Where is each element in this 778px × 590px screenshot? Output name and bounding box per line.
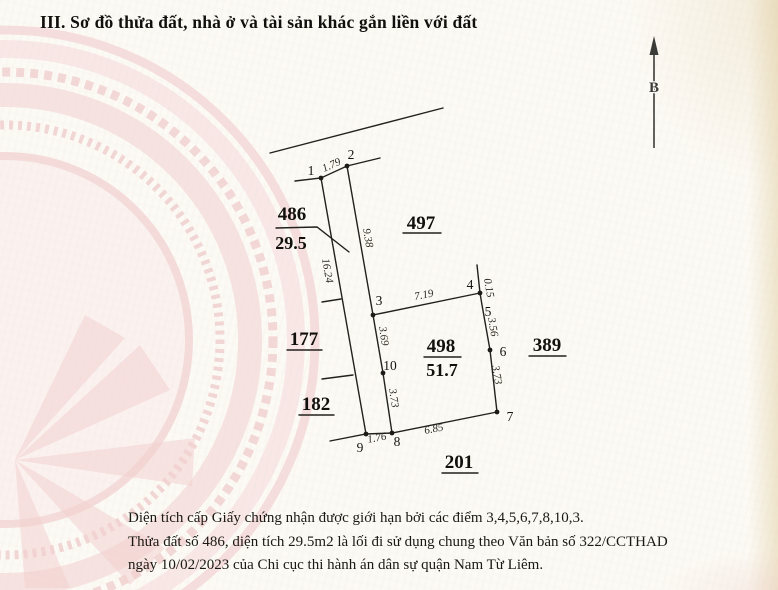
note-line-3: ngày 10/02/2023 của Chi cục thi hành án … <box>128 554 760 578</box>
north-label: B <box>649 80 659 96</box>
notes-block: Diện tích cấp Giấy chứng nhận được giới … <box>128 507 760 578</box>
parcel-labels: 486 29.5 497 498 51.7 177 182 389 201 <box>275 204 561 473</box>
vertex-dot-4 <box>478 291 483 296</box>
document-page: III. Sơ đồ thửa đất, nhà ở và tài sản kh… <box>0 0 778 590</box>
lane-boundary-line <box>347 166 392 433</box>
vertex-dot-2 <box>345 164 350 169</box>
parcel389-number: 389 <box>533 335 562 356</box>
point-label-10: 10 <box>383 358 397 373</box>
vertex-dot-1 <box>319 176 324 181</box>
note-line-1: Diện tích cấp Giấy chứng nhận được giới … <box>128 507 760 531</box>
road-edge-line <box>270 108 443 153</box>
parcel177-number: 177 <box>290 329 319 350</box>
point-label-7: 7 <box>507 409 514 424</box>
parcel498-number: 498 <box>427 336 456 357</box>
dim-3-4: 7.19 <box>413 287 435 303</box>
north-arrow-icon: B <box>649 36 659 148</box>
left-boundary-tick-2 <box>322 375 353 379</box>
dim-1-2: 1.79 <box>320 156 343 175</box>
parcel201-number: 201 <box>445 452 474 473</box>
parcel-diagram: 1 2 3 4 5 6 7 8 9 10 1.79 9.38 16.24 3.6… <box>0 0 778 590</box>
north-arrow-head <box>650 36 659 55</box>
vertex-dots <box>319 164 500 437</box>
parcel497-number: 497 <box>407 213 436 234</box>
point-label-2: 2 <box>348 147 355 162</box>
dimension-labels: 1.79 9.38 16.24 3.69 3.73 7.19 0.15 3.56… <box>319 156 504 446</box>
parcel498-area: 51.7 <box>426 360 458 380</box>
parcel486-number: 486 <box>278 204 307 225</box>
point-label-9: 9 <box>357 440 364 455</box>
dim-4-5: 0.15 <box>481 277 496 299</box>
point-label-8: 8 <box>394 434 401 449</box>
dim-9-8: 1.76 <box>366 430 388 446</box>
note-line-2: Thửa đất số 486, diện tích 29.5m2 là lối… <box>128 531 760 555</box>
vertex-dot-7 <box>495 410 500 415</box>
point-labels: 1 2 3 4 5 6 7 8 9 10 <box>308 147 514 455</box>
point-label-4: 4 <box>467 277 474 292</box>
bottom-boundary-line <box>330 412 497 441</box>
point-label-6: 6 <box>500 344 507 359</box>
point-label-3: 3 <box>376 293 383 308</box>
vertex-dot-6 <box>488 348 493 353</box>
vertex-dot-3 <box>371 313 376 318</box>
parcel182-number: 182 <box>302 394 331 415</box>
dim-2-3: 9.38 <box>360 227 375 249</box>
point4-tick <box>477 265 480 293</box>
point-label-1: 1 <box>308 163 315 178</box>
dim-8-7: 6.85 <box>423 421 445 437</box>
dim-6-7: 3.73 <box>489 363 504 386</box>
left-boundary-tick-1 <box>322 299 341 302</box>
dim-1-9: 16.24 <box>319 257 335 284</box>
parcel486-area: 29.5 <box>275 233 307 253</box>
